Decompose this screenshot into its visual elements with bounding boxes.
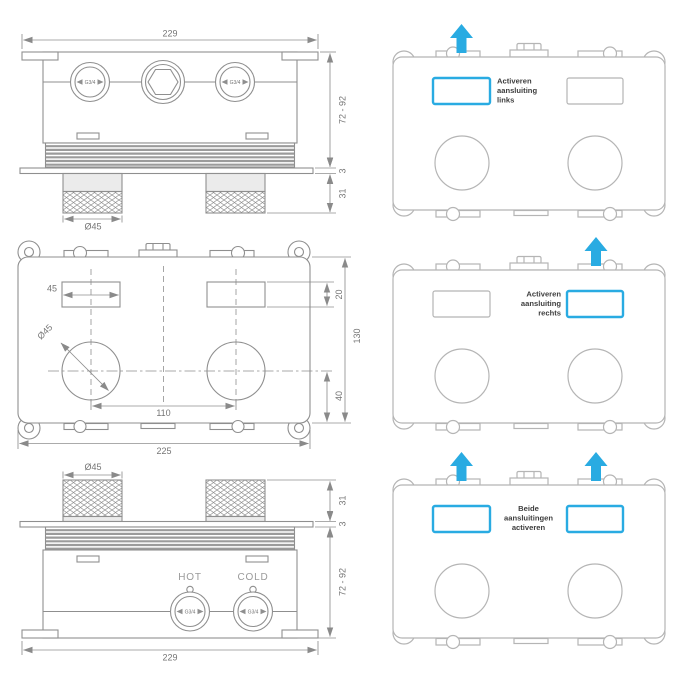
caption-line: links: [497, 96, 514, 105]
knob-right: [206, 480, 265, 522]
caption-line: aansluitingen: [504, 514, 553, 523]
dim-label-center-offset: 40: [334, 391, 344, 401]
cover-plate: [20, 522, 313, 528]
port-size-label: G3/4: [185, 609, 196, 615]
flange-tab-right: [282, 630, 318, 638]
dim-label-knob-diameter: Ø45: [84, 222, 101, 232]
caption-line: Beide: [518, 504, 539, 513]
caption-line: aansluiting: [521, 299, 561, 308]
port-g34-right: G3/4: [216, 63, 255, 102]
port-g34-left: G3/4: [71, 63, 110, 102]
port-size-label: G3/4: [248, 609, 259, 615]
dim-label-plate: 3: [338, 521, 348, 526]
dim-label-width: 229: [162, 653, 177, 663]
cold-port: COLD G3/4: [234, 572, 273, 631]
caption-line: rechts: [538, 309, 561, 318]
ribbed-section: [46, 527, 295, 550]
dim-label-plate: 3: [338, 168, 348, 173]
knob-left: [63, 174, 122, 214]
outlet-window-right-active: [567, 291, 623, 317]
technical-diagram-sheet: 229 G3/4 G3/4: [0, 0, 685, 685]
dim-label-depth: 72 - 92: [338, 568, 348, 596]
dim-label-knob-diameter: Ø45: [84, 462, 101, 472]
caption-line: Activeren: [497, 77, 532, 86]
dim-label-rect-height: 20: [334, 289, 344, 299]
cold-label: COLD: [238, 572, 269, 583]
knob-right: [206, 174, 265, 214]
ribbed-section: [46, 143, 295, 167]
port-center-hex: [142, 61, 185, 104]
diagram-canvas: 229 G3/4 G3/4: [0, 0, 685, 685]
outlet-window-left-active: [433, 506, 490, 532]
dim-label-knob-height: 31: [338, 188, 348, 198]
cover-plate: [20, 168, 313, 174]
caption-line: activeren: [512, 523, 546, 532]
outlet-window-left-active: [433, 78, 490, 104]
outlet-window-right-active: [567, 506, 623, 532]
dim-label-knob-height: 31: [338, 495, 348, 505]
dim-label-depth: 72 - 92: [338, 96, 348, 124]
knob-left: [63, 480, 122, 522]
dim-label-width: 229: [162, 29, 177, 39]
caption-line: Activeren: [526, 290, 561, 299]
dim-label-box-height: 130: [352, 328, 362, 343]
port-size-label: G3/4: [85, 80, 96, 86]
hot-label: HOT: [178, 572, 202, 583]
flange-tab-left: [22, 630, 58, 638]
dim-label-rect-width: 45: [47, 284, 57, 294]
port-size-label: G3/4: [230, 80, 241, 86]
caption-line: aansluiting: [497, 86, 537, 95]
dim-label-port-spacing: 110: [156, 408, 170, 418]
dim-label-box-width: 225: [156, 446, 171, 456]
